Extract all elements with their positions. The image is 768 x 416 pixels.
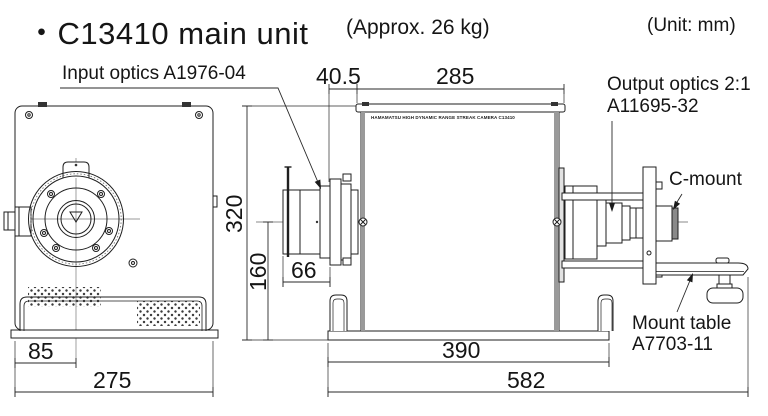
label-mount-table-line2: A7703-11 [632,334,713,355]
technical-drawing-page: ・C13410 main unit (Approx. 26 kg) (Unit:… [0,0,768,416]
axis-screw-right [553,218,561,226]
dimension-body-height: 320 [221,195,248,233]
title-bullet: ・ [26,16,58,51]
page-title: ・C13410 main unit [26,8,309,53]
dimension-body-length: 285 [436,63,474,90]
label-output-optics-line2: A11695-32 [607,96,699,117]
side-view [256,102,748,340]
label-input-optics: Input optics A1976-04 [62,63,246,84]
nameplate-text: HAMAMATSU HIGH DYNAMIC RANGE STREAK CAME… [371,115,515,120]
title-text: C13410 main unit [58,16,309,51]
label-output-optics-line1: Output optics 2:1 [607,74,751,95]
dimension-optical-axis-height: 160 [245,253,272,291]
title-weight-note: (Approx. 26 kg) [346,16,490,40]
dimension-base-length: 390 [442,337,480,364]
dimension-input-optics-length: 66 [291,257,317,284]
label-mount-table-line1: Mount table [632,313,731,334]
c-mount-adapter [656,206,678,241]
axis-screw-left [359,218,367,226]
dimension-front-axis-offset: 85 [28,338,54,365]
front-view [4,102,218,368]
dimension-front-width: 275 [93,367,131,394]
dimension-flange-to-body: 40.5 [316,63,361,90]
label-c-mount: C-mount [669,169,742,190]
input-optics [283,167,358,265]
dimension-total-length: 582 [507,367,545,394]
unit-note: (Unit: mm) [647,15,736,37]
